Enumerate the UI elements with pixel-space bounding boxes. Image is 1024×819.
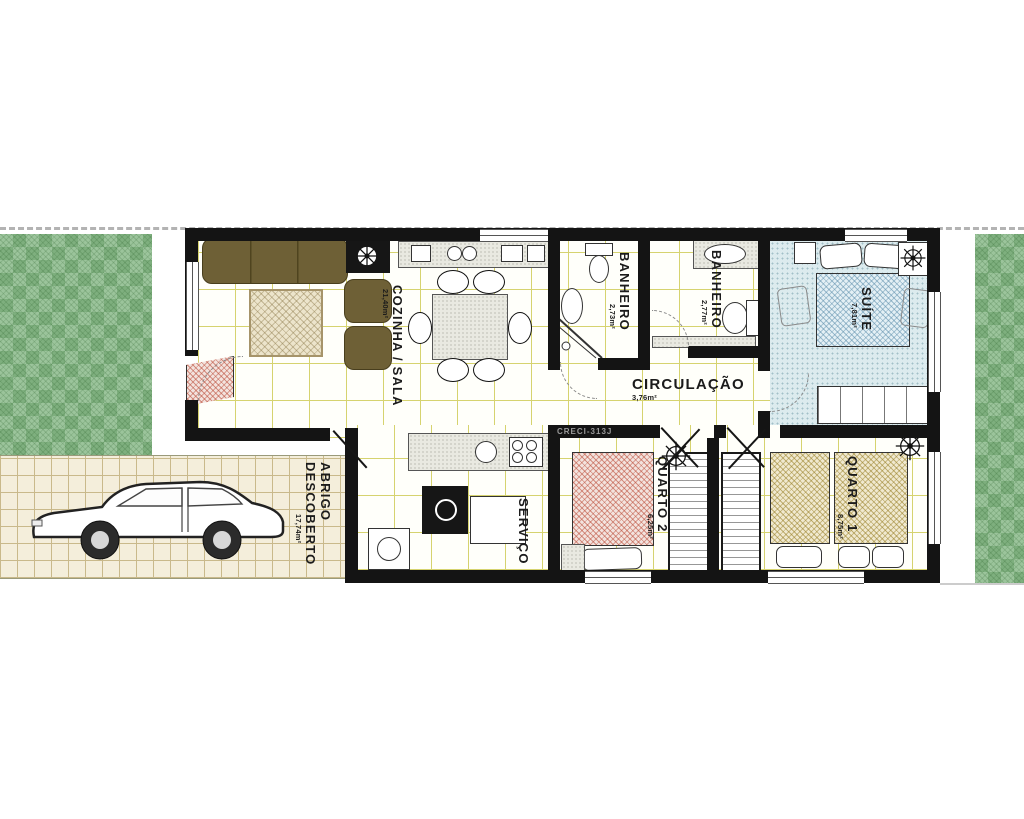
room-name: SUÍTE xyxy=(859,287,874,331)
room-area: 2,77m² xyxy=(700,250,709,329)
washer-door xyxy=(377,537,401,561)
wall-bath1-bottom xyxy=(598,358,650,370)
window xyxy=(585,571,651,584)
pillow xyxy=(838,546,870,568)
burner xyxy=(512,440,523,451)
nightstand xyxy=(561,544,585,572)
counter-appliance xyxy=(527,245,545,262)
shower-head xyxy=(556,316,604,360)
watermark: CRECI-313J xyxy=(557,427,612,436)
stove xyxy=(509,437,543,467)
room-label-abrigo-descoberto: ABRIGO DESCOBERTO 17,74m² xyxy=(294,462,333,566)
kitchen-counter-lower xyxy=(408,433,550,471)
ac-unit xyxy=(898,242,930,276)
cabinet-sink xyxy=(435,499,457,521)
room-label-banheiro-2: BANHEIRO 2,77m² xyxy=(700,250,724,329)
room-name: CIRCULAÇÃO xyxy=(632,376,745,393)
room-name: ABRIGO xyxy=(318,462,333,566)
dining-chair xyxy=(508,312,532,344)
room-area: 21,40m² xyxy=(381,285,390,407)
room-name: QUARTO 1 xyxy=(845,456,860,539)
room-name: BANHEIRO xyxy=(617,252,632,331)
burner xyxy=(526,440,537,451)
window xyxy=(928,452,941,544)
vent-fan-icon xyxy=(352,241,382,271)
wall-hall-stub xyxy=(714,425,726,438)
pillow xyxy=(819,242,863,270)
window xyxy=(480,229,548,242)
toilet-bowl xyxy=(722,302,748,334)
room-name: BANHEIRO xyxy=(709,250,724,329)
counter-appliance xyxy=(411,245,431,262)
wall-suite-bottom xyxy=(780,425,927,438)
dining-chair xyxy=(408,312,432,344)
cooktop-unit xyxy=(346,239,390,273)
toilet-bowl xyxy=(589,255,609,283)
pillow xyxy=(776,546,822,568)
room-name: QUARTO 2 xyxy=(655,456,670,539)
nightstand xyxy=(794,242,816,264)
kitchen-sink-bowl xyxy=(447,246,462,261)
dining-chair xyxy=(437,270,469,294)
room-area: 2,73m² xyxy=(608,252,617,331)
bed-quarto-1-a xyxy=(770,452,828,572)
suite-dresser xyxy=(817,386,931,424)
grass-right-yard xyxy=(975,234,1024,583)
window xyxy=(186,262,199,350)
sidewalk-line xyxy=(940,583,1024,585)
suite-chair xyxy=(777,285,812,327)
dining-chair xyxy=(473,358,505,382)
room-name: DESCOBERTO xyxy=(303,462,318,566)
sink-cabinet xyxy=(422,486,468,534)
room-area: 8,75m² xyxy=(836,456,845,539)
wall-top xyxy=(185,228,940,241)
window xyxy=(845,229,907,242)
wall-bath-divider xyxy=(638,241,650,358)
floor-plan: COZINHA / SALA 21,40m² BANHEIRO 2,73m² B… xyxy=(0,0,1024,819)
dining-chair xyxy=(473,270,505,294)
kitchen-counter-top xyxy=(398,241,550,268)
car xyxy=(26,470,288,570)
room-label-banheiro-1: BANHEIRO 2,73m² xyxy=(608,252,632,331)
grass-left-yard xyxy=(0,234,152,455)
ceiling-fan-icon xyxy=(899,244,927,272)
burner xyxy=(526,452,537,463)
room-area: 7,81m² xyxy=(850,287,859,331)
room-name: SERVIÇO xyxy=(516,498,531,565)
room-label-quarto-2: QUARTO 2 6,25m² xyxy=(646,456,670,539)
kitchen-sink-bowl xyxy=(462,246,477,261)
room-area: 17,74m² xyxy=(294,462,303,566)
wall-quarto-divider xyxy=(707,438,719,570)
pillow xyxy=(582,547,643,571)
prep-sink xyxy=(475,441,497,463)
room-label-circulacao: CIRCULAÇÃO 3,76m² xyxy=(632,376,745,402)
dining-chair xyxy=(437,358,469,382)
bed-blanket xyxy=(770,452,830,544)
room-area: 3,76m² xyxy=(632,393,745,402)
wall-carport-top xyxy=(198,428,330,441)
wardrobe-quarto-1 xyxy=(721,452,761,574)
room-label-cozinha-sala: COZINHA / SALA 21,40m² xyxy=(381,285,405,407)
bed-blanket xyxy=(572,452,654,546)
room-area: 6,25m² xyxy=(646,456,655,539)
pillow xyxy=(872,546,904,568)
rug xyxy=(249,289,323,357)
sofa xyxy=(202,238,348,284)
window xyxy=(928,292,941,392)
counter-appliance xyxy=(501,245,523,262)
room-label-suite: SUÍTE 7,81m² xyxy=(850,287,874,331)
wall-quarto2-left xyxy=(548,438,560,570)
wall-bath1-left xyxy=(548,241,560,370)
room-label-quarto-1: QUARTO 1 8,75m² xyxy=(836,456,860,539)
burner xyxy=(512,452,523,463)
room-name: COZINHA / SALA xyxy=(390,285,405,407)
washer xyxy=(368,528,410,570)
wall-bath2-bottom xyxy=(688,346,758,358)
car-headlight xyxy=(32,520,42,526)
wall-left xyxy=(185,400,198,441)
wall-suite-left xyxy=(758,241,770,371)
dining-table xyxy=(432,294,508,360)
window xyxy=(768,571,864,584)
room-label-servico: SERVIÇO xyxy=(516,498,531,565)
